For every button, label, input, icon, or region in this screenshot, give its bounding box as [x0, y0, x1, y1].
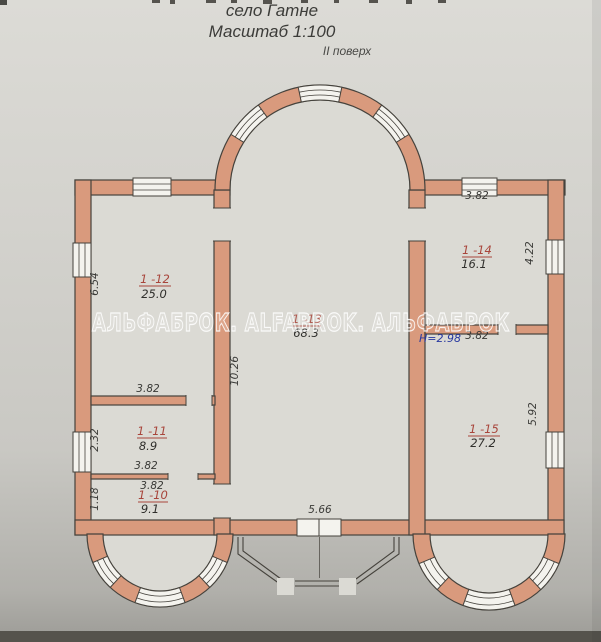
floor-plan-drawing: село Гатне Масштаб 1:100 II поверх	[0, 0, 601, 642]
room-number: 1 -10	[138, 488, 168, 502]
balcony-post	[277, 578, 294, 595]
watermark-text: АЛЬФАБРОК. ALFABROK. АЛЬФАБРОК	[92, 308, 510, 337]
room-number: 1 -15	[469, 422, 499, 436]
room-area: 8.9	[139, 439, 157, 453]
room-area: 25.0	[141, 287, 167, 301]
dimension-label: 3.82	[134, 460, 158, 472]
dimension-label: 4.22	[524, 241, 536, 265]
wall	[214, 190, 230, 535]
dimension-label: 2.32	[89, 428, 101, 452]
dimension-label: 6.54	[89, 272, 101, 295]
room-number: 1 -11	[137, 424, 167, 438]
dimension-label: 5.66	[308, 504, 332, 516]
room-area: 9.1	[141, 502, 159, 516]
photo-edge-bottom	[0, 631, 601, 642]
header-floor: II поверх	[323, 44, 372, 58]
balcony-post	[339, 578, 356, 595]
header-village: село Гатне	[226, 1, 318, 20]
room-number: 1 -12	[140, 272, 170, 286]
room-area: 27.2	[470, 436, 496, 450]
dimension-label: 3.82	[465, 190, 489, 202]
photo-edge-right	[592, 0, 601, 642]
wall	[548, 180, 564, 535]
window	[298, 85, 342, 102]
photo-corner-speck	[0, 0, 7, 5]
wall	[409, 190, 425, 535]
floor-plan-photo: село Гатне Масштаб 1:100 II поверх	[0, 0, 601, 642]
room-area: 16.1	[461, 257, 487, 271]
dimension-label: 1.18	[89, 487, 101, 511]
dimension-label: 3.82	[136, 383, 160, 395]
dimension-label: 5.92	[527, 402, 539, 426]
header-scale: Масштаб 1:100	[209, 22, 336, 41]
wall	[75, 180, 91, 535]
dimension-label: 10.26	[229, 356, 241, 386]
room-number: 1 -14	[462, 243, 492, 257]
